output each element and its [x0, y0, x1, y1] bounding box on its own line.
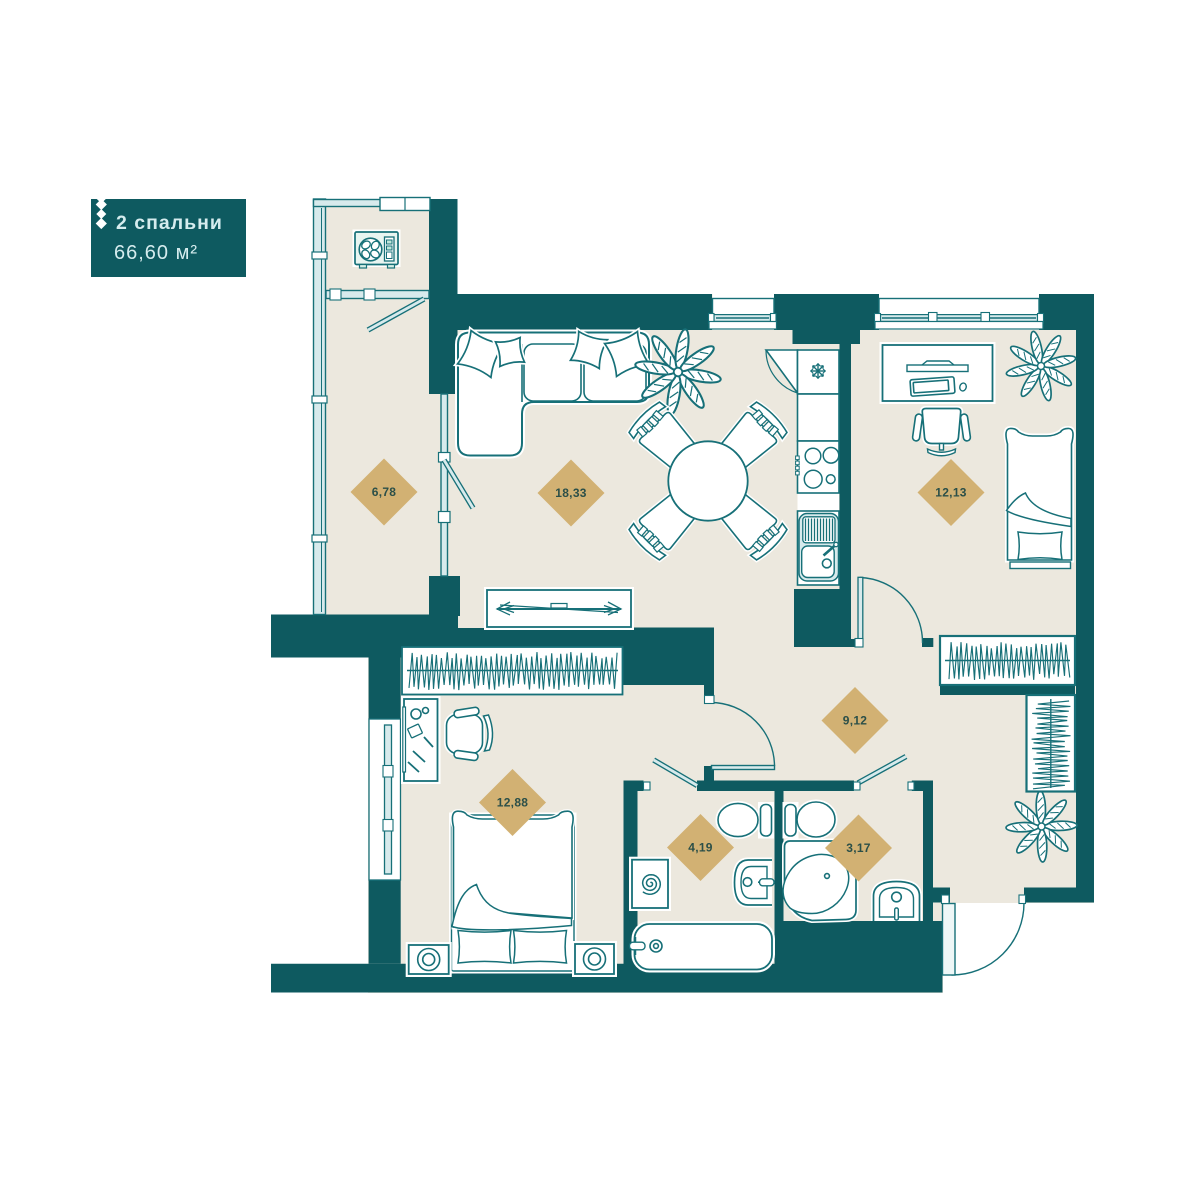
svg-text:9,12: 9,12: [843, 714, 868, 728]
svg-text:6,78: 6,78: [372, 485, 397, 499]
svg-text:4,19: 4,19: [688, 841, 713, 855]
svg-text:18,33: 18,33: [555, 486, 587, 500]
svg-text:2 спальни: 2 спальни: [116, 212, 223, 234]
svg-text:12,13: 12,13: [935, 486, 967, 500]
svg-text:3,17: 3,17: [846, 841, 871, 855]
svg-text:66,60 м²: 66,60 м²: [114, 242, 198, 264]
svg-text:12,88: 12,88: [497, 796, 529, 810]
